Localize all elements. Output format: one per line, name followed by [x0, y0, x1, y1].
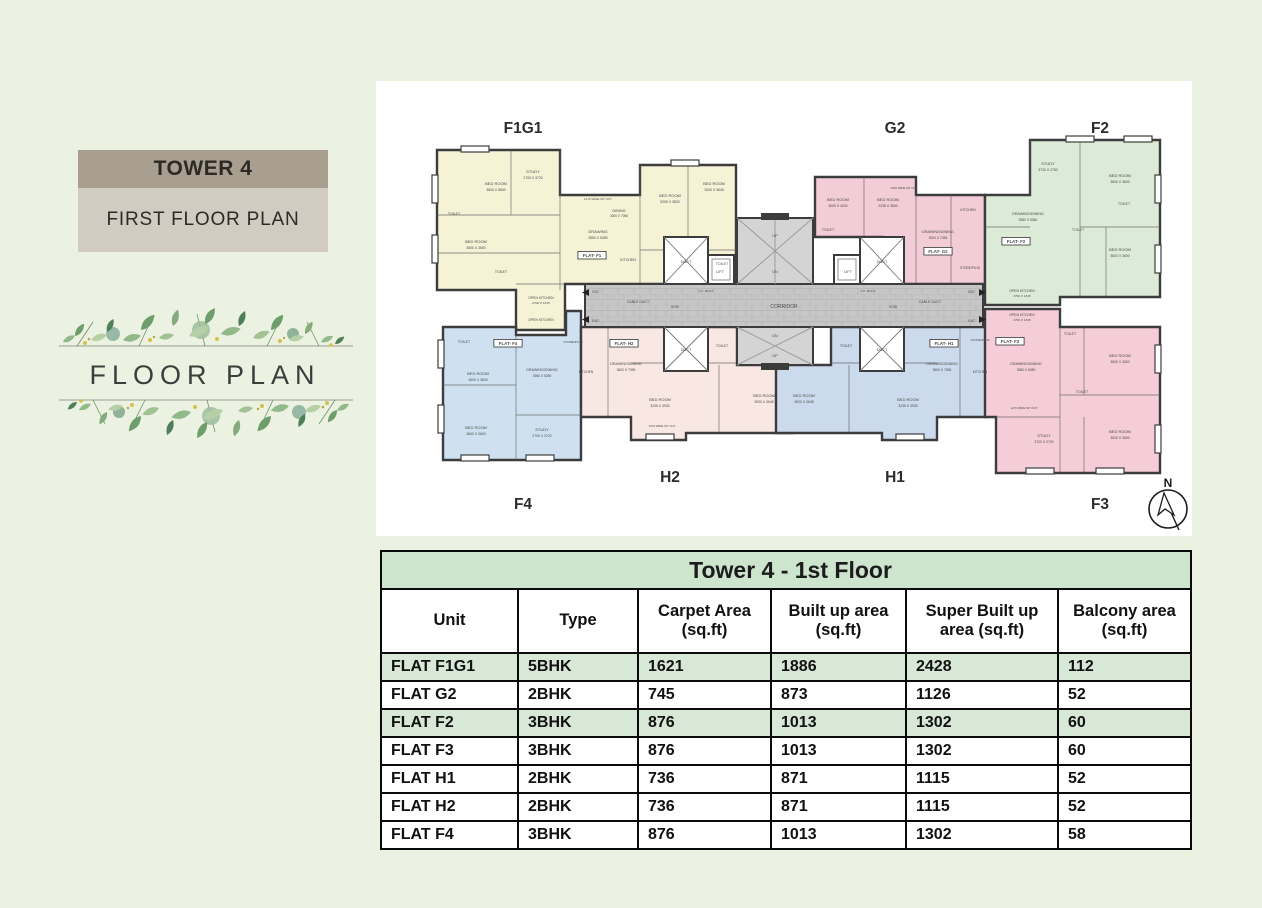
room-label: DRAWING: [588, 229, 607, 234]
cell-balcony: 58: [1058, 821, 1191, 849]
flat-label-f4: F4: [514, 496, 532, 513]
cell-carpet: 736: [638, 793, 771, 821]
cell-super: 1302: [906, 737, 1058, 765]
room-label: 3600 X 7055: [933, 368, 952, 372]
cell-type: 3BHK: [518, 709, 638, 737]
table-header-row: Unit Type Carpet Area (sq.ft) Built up a…: [381, 589, 1191, 653]
compass-n-label: N: [1164, 476, 1173, 490]
room-label: DUCT: [681, 260, 692, 264]
room-label: 1370 WIDE SIT OUT: [649, 424, 676, 428]
col-header-type: Type: [518, 589, 638, 653]
cell-balcony: 60: [1058, 709, 1191, 737]
room-label: FLAT- H1: [935, 341, 955, 346]
room-label: STUDY: [1037, 433, 1051, 438]
room-label: STORE/PUJA: [970, 338, 990, 342]
room-label: BED ROOM: [1109, 247, 1131, 252]
room-label: FLAT- F2: [1007, 239, 1026, 244]
room-label: TOILET: [1064, 332, 1077, 336]
cell-super: 1302: [906, 709, 1058, 737]
room-label: 3000 X 7055: [929, 236, 948, 240]
room-label: ENT.: [968, 290, 975, 294]
room-label: KITCHEN: [960, 208, 976, 212]
flat-f2-area: [985, 140, 1160, 305]
room-label: TOILET: [1076, 390, 1089, 394]
flat-label-g2: G2: [885, 120, 906, 137]
cell-type: 2BHK: [518, 793, 638, 821]
flat-label-f3: F3: [1091, 496, 1109, 513]
room-label: 3600 X 3600: [466, 432, 485, 436]
cell-unit: FLAT F4: [381, 821, 518, 849]
col-header-unit: Unit: [381, 589, 518, 653]
room-label: 1220 WIDE SIT OUT: [891, 186, 918, 190]
cell-super: 1115: [906, 793, 1058, 821]
room-label: DUCT: [681, 348, 692, 352]
room-label: OPEN KITCHEN: [1009, 289, 1035, 293]
table-row: FLAT G2 2BHK 745 873 1126 52: [381, 681, 1191, 709]
room-label: DRAWING/DINING: [922, 230, 954, 234]
room-label: BED ROOM: [465, 425, 487, 430]
cell-unit: FLAT F3: [381, 737, 518, 765]
table-title: Tower 4 - 1st Floor: [381, 551, 1191, 589]
table-title-row: Tower 4 - 1st Floor: [381, 551, 1191, 589]
cell-balcony: 52: [1058, 681, 1191, 709]
room-label: 3980 X 5280: [533, 374, 552, 378]
flat-label-h1: H1: [885, 469, 905, 486]
room-label: BED ROOM: [897, 397, 919, 402]
cell-super: 2428: [906, 653, 1058, 681]
flat-f4-area: [443, 311, 581, 460]
room-label: 2700 X 1815: [1013, 294, 1031, 298]
room-label: STUDY: [535, 427, 549, 432]
cell-carpet: 1621: [638, 653, 771, 681]
col-header-carpet: Carpet Area (sq.ft): [638, 589, 771, 653]
room-label: CORRIDOR: [770, 304, 798, 310]
room-label: BED ROOM: [465, 239, 487, 244]
room-label: 3000 X 7055: [610, 214, 628, 218]
cell-unit: FLAT H1: [381, 765, 518, 793]
greenery-bottom-band: [59, 399, 353, 439]
cell-carpet: 736: [638, 765, 771, 793]
room-label: 3235 X 3930: [650, 404, 669, 408]
room-label: STORE/PUJA: [960, 266, 981, 270]
room-label: LIFT: [716, 270, 724, 274]
cell-built: 871: [771, 765, 906, 793]
table-row: FLAT F1G1 5BHK 1621 1886 2428 112: [381, 653, 1191, 681]
room-label: DUCT: [877, 260, 888, 264]
cell-built: 871: [771, 793, 906, 821]
col-header-balcony: Balcony area (sq.ft): [1058, 589, 1191, 653]
cell-balcony: 52: [1058, 765, 1191, 793]
room-label: 3600 X 7055: [617, 368, 636, 372]
room-label: TOILET: [458, 340, 471, 344]
room-label: TOILET: [495, 270, 508, 274]
floor-plan-bar: FIRST FLOOR PLAN: [78, 188, 328, 252]
room-label: 3600 X 3600: [1110, 360, 1129, 364]
room-label: 3980 X 5080: [1017, 368, 1036, 372]
room-label: 3000 X 3645: [754, 400, 773, 404]
cell-unit: FLAT H2: [381, 793, 518, 821]
room-label: CABLE DUCT: [919, 300, 942, 304]
cell-unit: FLAT F2: [381, 709, 518, 737]
cell-balcony: 52: [1058, 793, 1191, 821]
room-label: 3980 X 5280: [588, 236, 607, 240]
room-label: FLAT- H2: [615, 341, 635, 346]
room-label: 1270 WIDE SIT OUT: [1011, 406, 1038, 410]
room-label: 3980 X 5080: [1019, 218, 1038, 222]
room-label: DRAWING/DINING: [526, 368, 558, 372]
room-label: CABLE DUCT: [627, 300, 650, 304]
room-label: 3600 X 3600: [468, 378, 487, 382]
room-label: 3000 X 3645: [794, 400, 813, 404]
room-label: BED ROOM: [485, 181, 507, 186]
room-label: KITCHEN: [620, 258, 636, 262]
room-label: DRAWING/DINING: [926, 362, 958, 366]
room-label: FLAT- F1: [583, 253, 602, 258]
room-label: OPEN KITCHEN: [1009, 313, 1035, 317]
room-label: UP: [772, 234, 778, 238]
room-label: BED ROOM: [753, 393, 775, 398]
room-label: T.C. DUCT: [699, 289, 714, 293]
col-header-builtup: Built up area (sq.ft): [771, 589, 906, 653]
cell-super: 1302: [906, 821, 1058, 849]
floor-plan-drawing: BED ROOM3600 X 5600STUDY2700 X 3720TOILE…: [376, 81, 1192, 536]
tower-title-bar: TOWER 4: [78, 150, 328, 188]
room-label: 2700 X 3720: [532, 434, 551, 438]
cell-type: 2BHK: [518, 681, 638, 709]
room-label: 3000 X 4000: [828, 204, 847, 208]
room-label: BED ROOM: [659, 193, 681, 198]
room-label: FLAT- F3: [1001, 339, 1020, 344]
room-label: BED ROOM: [1109, 353, 1131, 358]
cell-carpet: 876: [638, 737, 771, 765]
flat-label-f1g1: F1G1: [504, 120, 543, 137]
room-label: STUDY: [1041, 161, 1055, 166]
room-label: DRAWING/DINING: [610, 362, 642, 366]
room-label: 3600 X 3600: [466, 246, 485, 250]
cell-carpet: 745: [638, 681, 771, 709]
room-label: TOILET: [840, 344, 853, 348]
room-label: T.C. DUCT: [861, 289, 876, 293]
decorative-floor-plan-title: FLOOR PLAN: [60, 360, 350, 391]
room-label: KITCHEN: [579, 370, 594, 374]
cell-carpet: 876: [638, 821, 771, 849]
room-label: 3600 X 3600: [1110, 436, 1129, 440]
room-label: DRAWING/DINING: [1012, 212, 1044, 216]
floor-plan-canvas: BED ROOM3600 X 5600STUDY2700 X 3720TOILE…: [376, 81, 1192, 536]
room-label: BED ROOM: [827, 197, 849, 202]
table-row: FLAT H1 2BHK 736 871 1115 52: [381, 765, 1191, 793]
cell-carpet: 876: [638, 709, 771, 737]
cell-super: 1126: [906, 681, 1058, 709]
room-label: DN: [772, 334, 778, 338]
flat-label-f2: F2: [1091, 120, 1109, 137]
room-label: BED ROOM: [703, 181, 725, 186]
room-label: BED ROOM: [649, 397, 671, 402]
cell-super: 1115: [906, 765, 1058, 793]
room-label: 3600 X 5600: [486, 188, 505, 192]
cell-built: 1013: [771, 737, 906, 765]
room-label: OPEN KITCHEN: [528, 296, 554, 300]
cell-balcony: 112: [1058, 653, 1191, 681]
col-header-super-builtup: Super Built up area (sq.ft): [906, 589, 1058, 653]
cell-built: 1013: [771, 821, 906, 849]
room-label: TOILET: [1072, 228, 1085, 232]
table-row: FLAT F3 3BHK 876 1013 1302 60: [381, 737, 1191, 765]
room-label: 5205 X 3830: [660, 200, 679, 204]
room-label: TOILET: [448, 212, 461, 216]
cell-type: 2BHK: [518, 765, 638, 793]
room-label: TOILET: [1118, 202, 1131, 206]
room-label: VOID: [671, 305, 680, 309]
room-label: DN: [772, 270, 778, 274]
room-label: 3000 X 3645: [704, 188, 723, 192]
brochure-page: TOWER 4 FIRST FLOOR PLAN: [0, 0, 1262, 908]
cell-built: 873: [771, 681, 906, 709]
cell-unit: FLAT G2: [381, 681, 518, 709]
room-label: 3235 X 3930: [898, 404, 917, 408]
room-label: 2700 X 1815: [532, 301, 550, 305]
room-label: TOILET: [716, 344, 729, 348]
cell-balcony: 60: [1058, 737, 1191, 765]
room-label: ENT.: [592, 319, 599, 323]
room-label: 3600 X 3600: [1110, 254, 1129, 258]
cell-built: 1886: [771, 653, 906, 681]
room-label: FLAT- F4: [499, 341, 518, 346]
room-label: LIFT: [844, 270, 852, 274]
floor-plan-bar-label: FIRST FLOOR PLAN: [107, 209, 300, 231]
room-label: 3600 X 3600: [1110, 180, 1129, 184]
room-label: 2235 X 3830: [878, 204, 897, 208]
room-label: 2700 X 1815: [1013, 318, 1031, 322]
cell-built: 1013: [771, 709, 906, 737]
room-label: BED ROOM: [467, 371, 489, 376]
tower-title: TOWER 4: [154, 157, 253, 181]
flat-label-h2: H2: [660, 469, 680, 486]
room-label: FLAT- G2: [928, 249, 948, 254]
room-label: UP: [772, 354, 778, 358]
room-label: KITCHEN: [973, 370, 988, 374]
room-label: ENT.: [968, 319, 975, 323]
room-label: 1270 WIDE SIT OUT: [584, 197, 612, 201]
room-label: ENT.: [592, 290, 599, 294]
room-label: BED ROOM: [793, 393, 815, 398]
room-label: TOILET: [716, 262, 729, 266]
cell-type: 3BHK: [518, 821, 638, 849]
area-statement-table: Tower 4 - 1st Floor Unit Type Carpet Are…: [380, 550, 1190, 850]
room-label: VOID: [889, 305, 898, 309]
room-label: DINING: [612, 209, 625, 213]
room-label: BED ROOM: [1109, 429, 1131, 434]
room-label: DUCT: [877, 348, 888, 352]
north-compass-icon: N: [1149, 476, 1187, 530]
room-label: BED ROOM: [877, 197, 899, 202]
room-label: OPEN KITCHEN: [528, 318, 554, 322]
table-row: FLAT F2 3BHK 876 1013 1302 60: [381, 709, 1191, 737]
room-label: 3720 X 2700: [1034, 440, 1053, 444]
table-row: FLAT H2 2BHK 736 871 1115 52: [381, 793, 1191, 821]
room-label: 2700 X 3720: [523, 176, 542, 180]
greenery-top-band: [59, 306, 353, 346]
cell-unit: FLAT F1G1: [381, 653, 518, 681]
cell-type: 5BHK: [518, 653, 638, 681]
room-label: DRAWING/DINING: [1010, 362, 1042, 366]
room-label: BED ROOM: [1109, 173, 1131, 178]
room-label: STORE/PUJA: [563, 340, 583, 344]
table-row: FLAT F4 3BHK 876 1013 1302 58: [381, 821, 1191, 849]
room-label: STUDY: [526, 169, 540, 174]
cell-type: 3BHK: [518, 737, 638, 765]
room-label: TOILET: [822, 228, 835, 232]
room-label: 3720 X 2780: [1038, 168, 1057, 172]
